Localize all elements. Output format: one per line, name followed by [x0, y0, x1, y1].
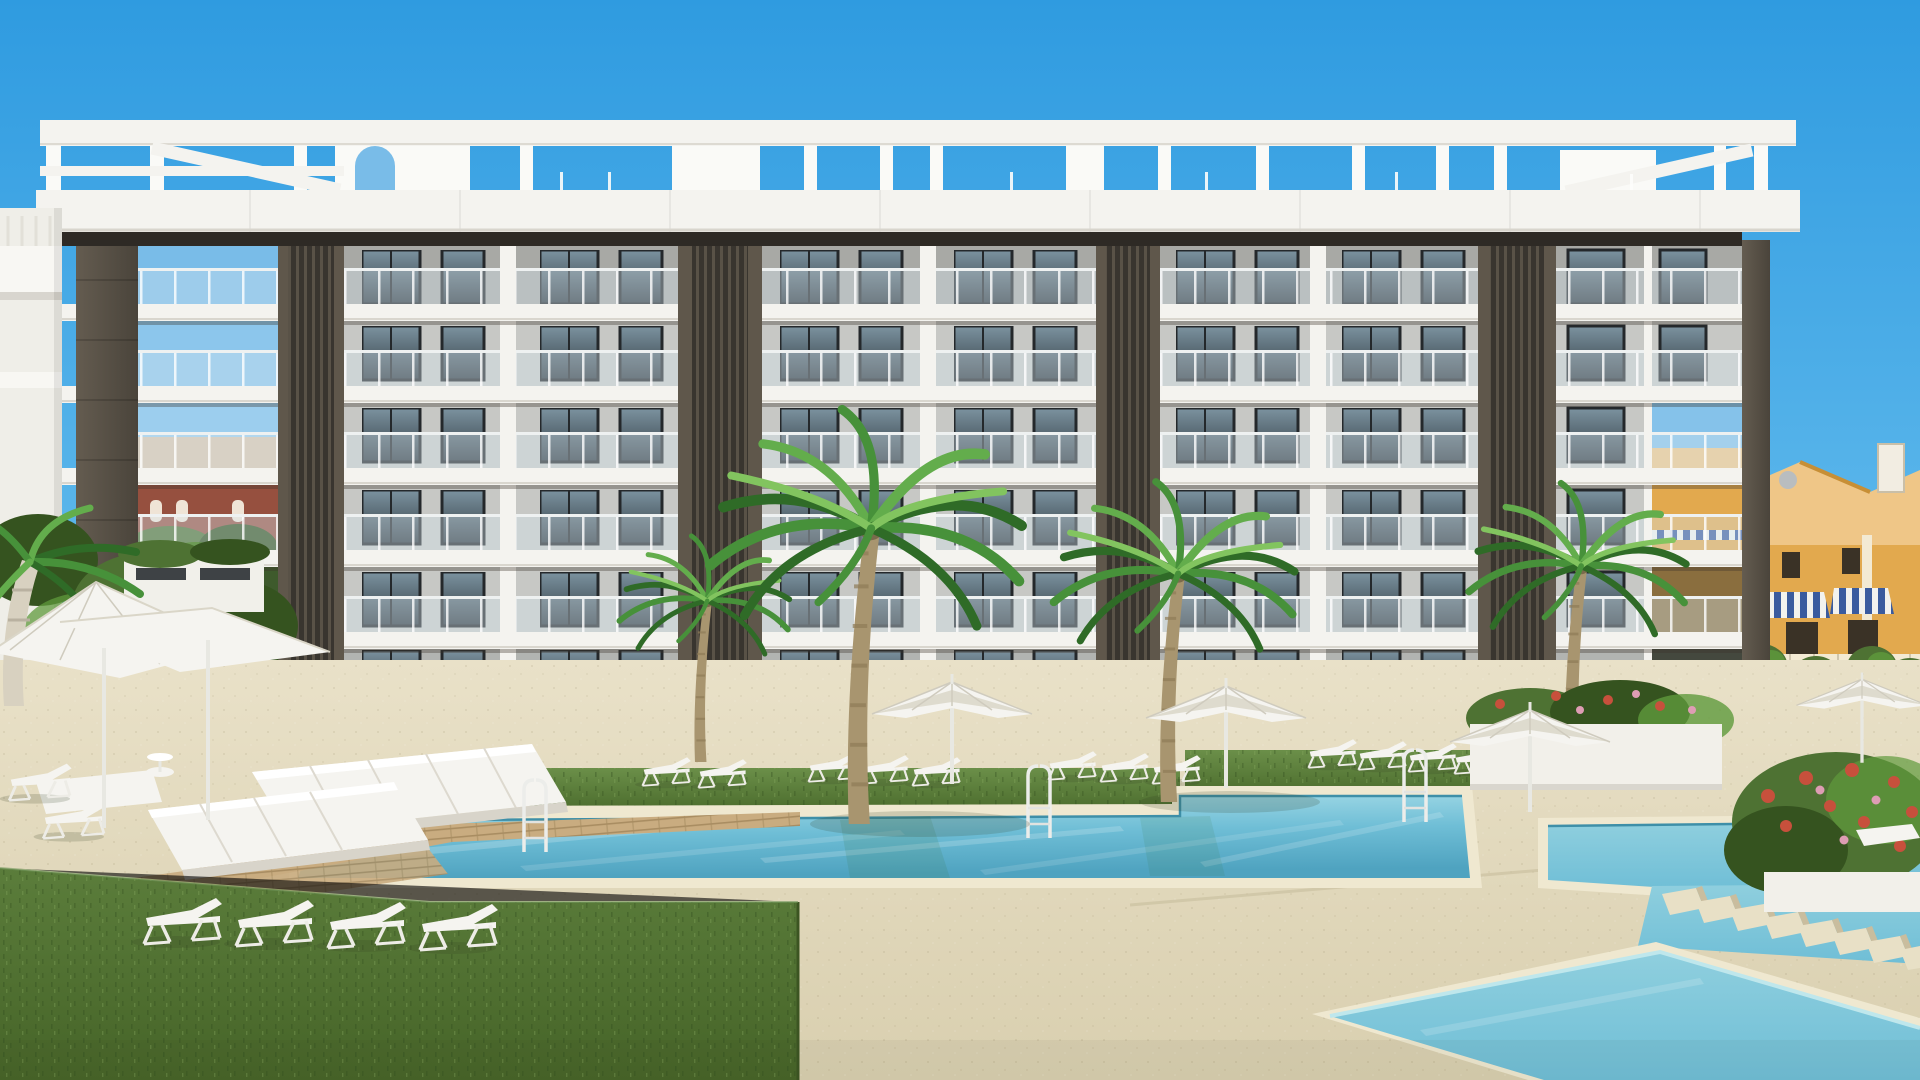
foreground-shade: [0, 1040, 1920, 1080]
louver-column: [1478, 232, 1556, 700]
scene-canvas: [0, 0, 1920, 1080]
pergola-beam: [40, 120, 1796, 146]
satellite-dish: [1779, 471, 1797, 489]
roof-fascia: [36, 190, 1800, 232]
pergola-notch: [355, 146, 395, 190]
rendered-photo: [0, 0, 1920, 1080]
louver-column: [1096, 232, 1160, 700]
